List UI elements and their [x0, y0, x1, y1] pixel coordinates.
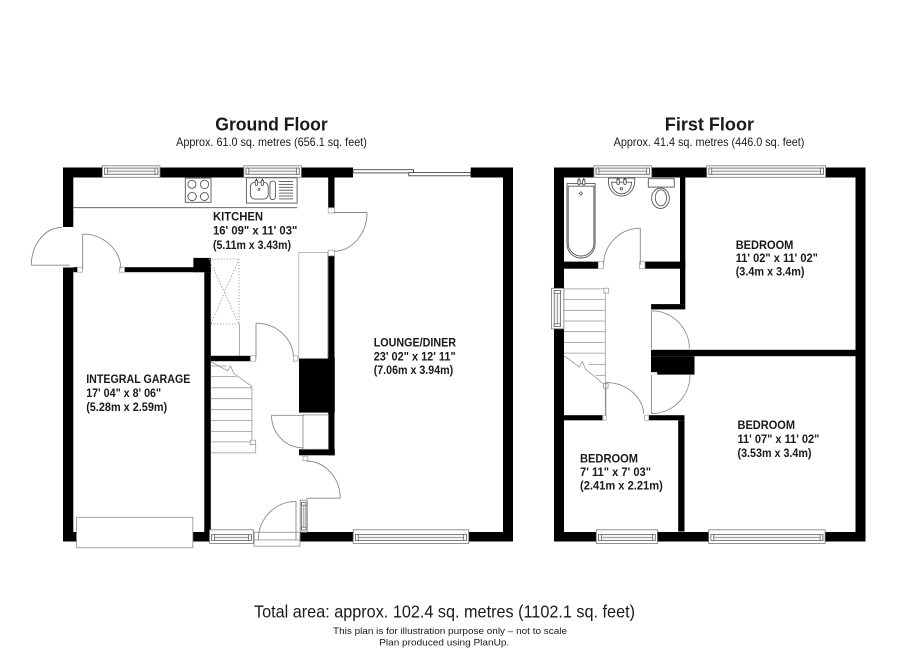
svg-text:(5.11m x 3.43m): (5.11m x 3.43m): [213, 238, 291, 252]
svg-text:23' 02" x 12' 11": 23' 02" x 12' 11": [374, 349, 456, 363]
svg-text:11' 02" x 11' 02": 11' 02" x 11' 02": [736, 251, 818, 265]
svg-text:LOUNGE/DINER: LOUNGE/DINER: [374, 336, 457, 350]
svg-text:(3.4m x 3.4m): (3.4m x 3.4m): [736, 264, 805, 278]
svg-text:Total area: approx. 102.4 sq.: Total area: approx. 102.4 sq. metres (11…: [254, 602, 635, 622]
svg-text:(2.41m x 2.21m): (2.41m x 2.21m): [580, 479, 663, 493]
svg-text:17' 04" x 8' 06": 17' 04" x 8' 06": [86, 386, 161, 400]
svg-text:11' 07" x 11' 02": 11' 07" x 11' 02": [738, 432, 820, 446]
svg-text:16' 09" x 11' 03": 16' 09" x 11' 03": [213, 224, 297, 238]
svg-text:(7.06m x 3.94m): (7.06m x 3.94m): [374, 363, 454, 377]
svg-text:Approx. 61.0 sq. metres (656.1: Approx. 61.0 sq. metres (656.1 sq. feet): [176, 136, 367, 149]
svg-text:(3.53m x 3.4m): (3.53m x 3.4m): [738, 446, 812, 460]
svg-text:7' 11" x 7' 03": 7' 11" x 7' 03": [580, 465, 651, 479]
svg-text:BEDROOM: BEDROOM: [738, 418, 796, 432]
svg-text:Plan produced using PlanUp.: Plan produced using PlanUp.: [379, 637, 509, 648]
svg-text:Approx. 41.4 sq. metres (446.0: Approx. 41.4 sq. metres (446.0 sq. feet): [614, 136, 805, 149]
svg-text:First Floor: First Floor: [665, 114, 754, 134]
svg-text:INTEGRAL GARAGE: INTEGRAL GARAGE: [86, 372, 190, 386]
svg-text:KITCHEN: KITCHEN: [213, 209, 263, 223]
svg-text:BEDROOM: BEDROOM: [580, 452, 638, 466]
svg-text:(5.28m x 2.59m): (5.28m x 2.59m): [86, 400, 167, 414]
svg-text:BEDROOM: BEDROOM: [736, 238, 794, 252]
svg-text:This plan is for illustration: This plan is for illustration purpose on…: [333, 625, 567, 636]
svg-text:Ground Floor: Ground Floor: [215, 114, 328, 134]
